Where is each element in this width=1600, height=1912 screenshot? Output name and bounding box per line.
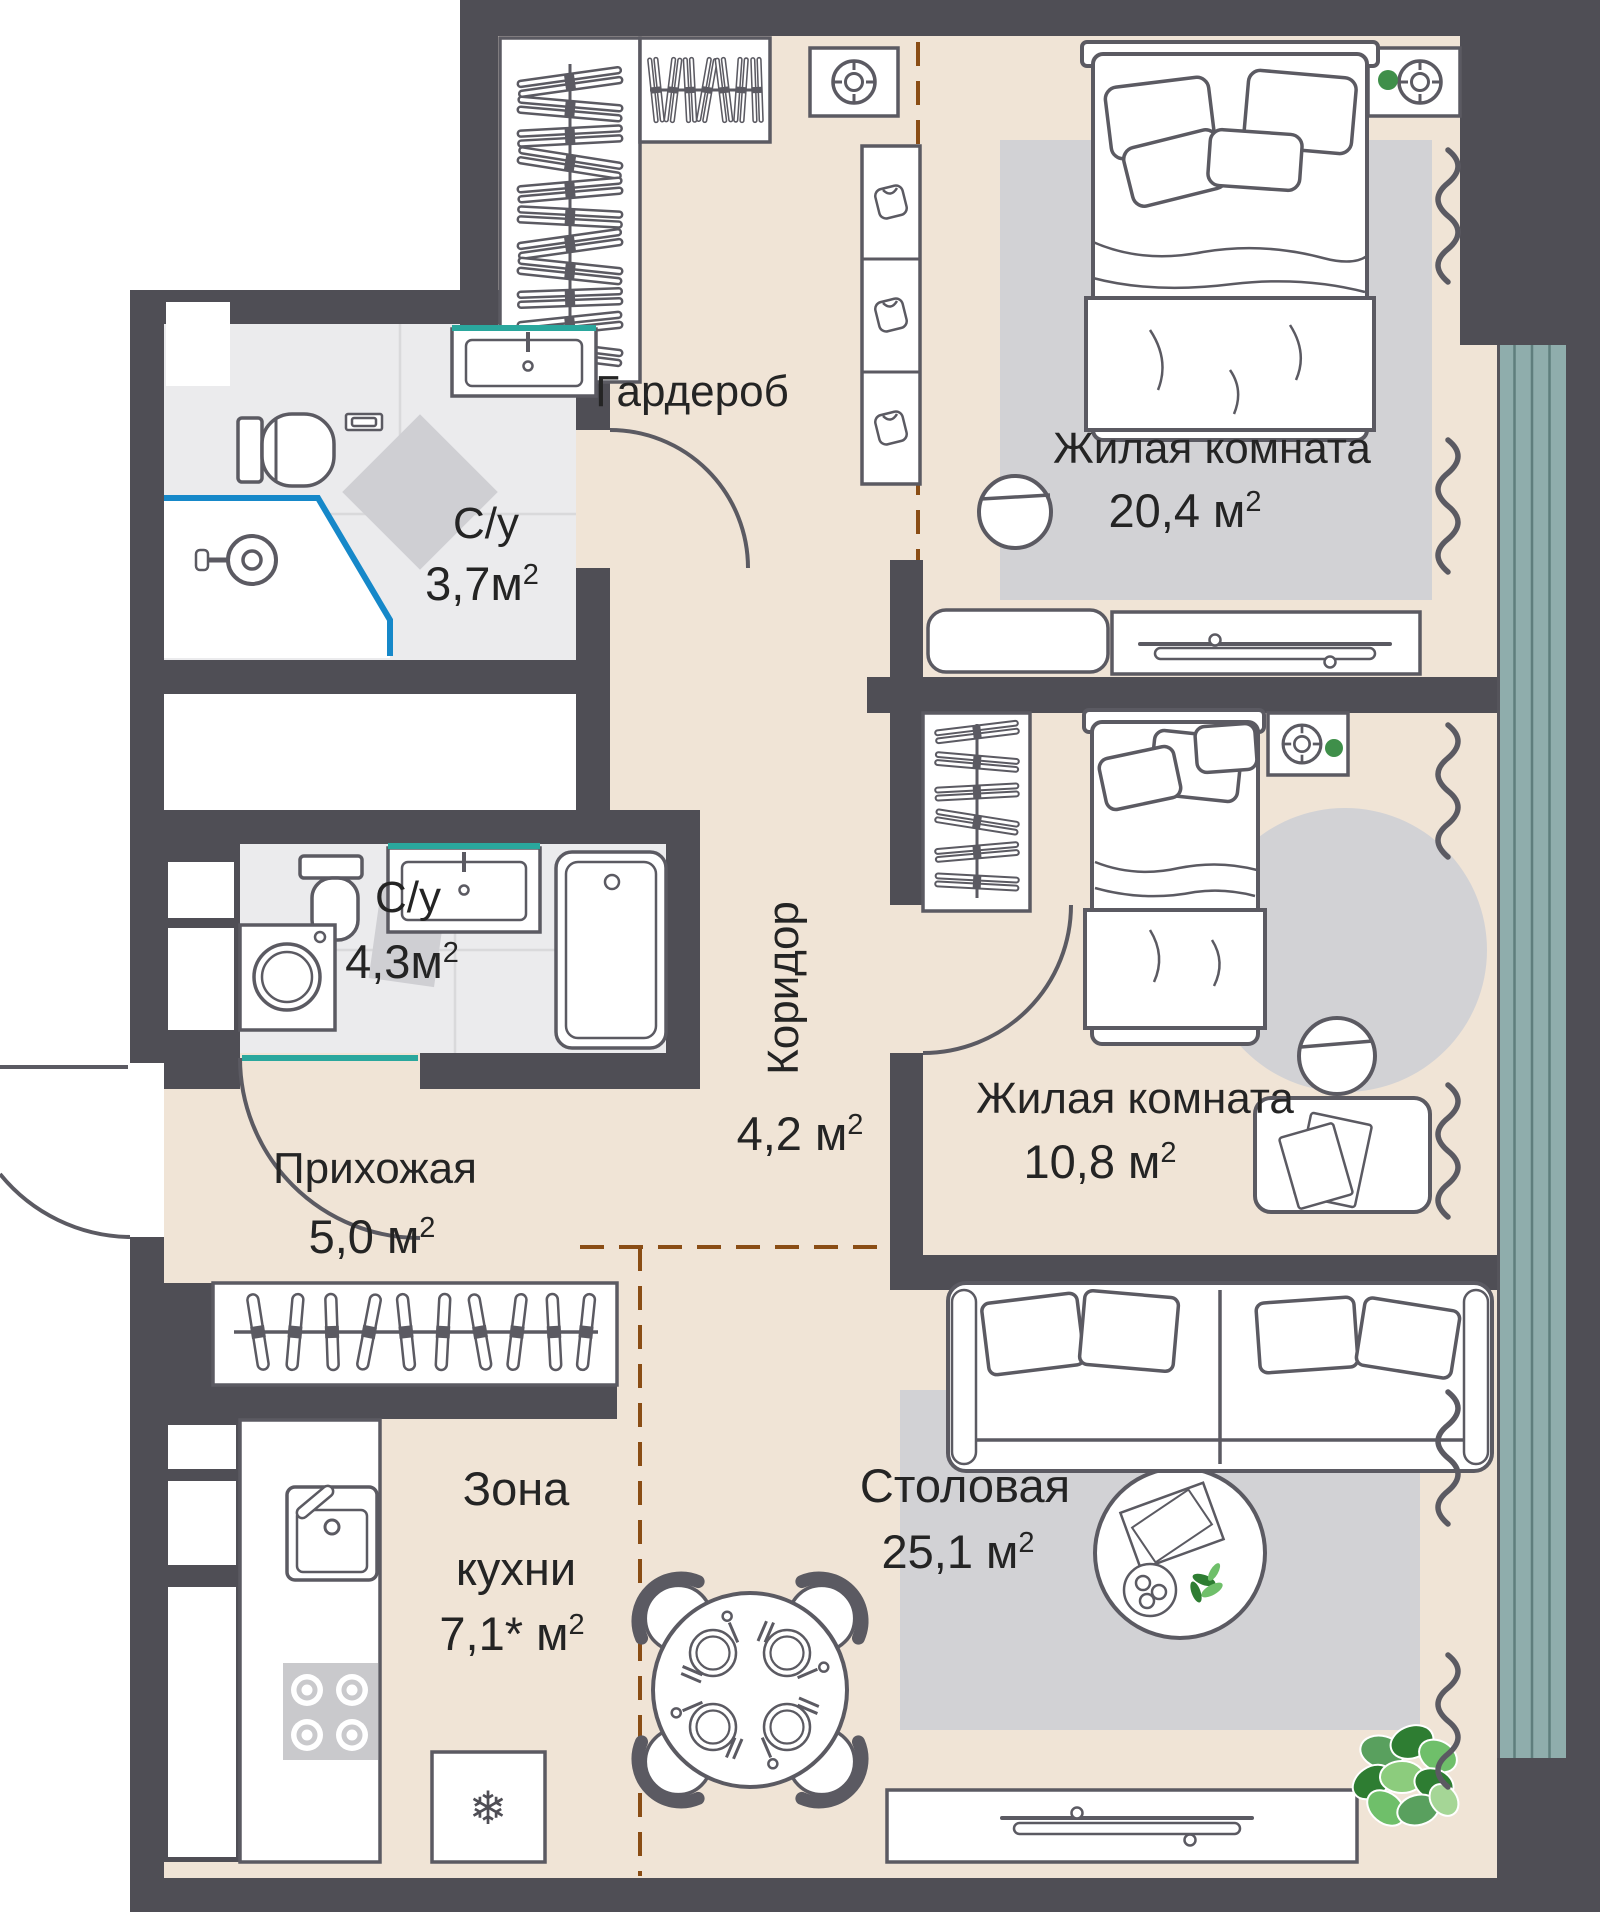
corridor-area-value: 4,2 bbox=[737, 1107, 802, 1160]
kitchen-area-value: 7,1* bbox=[439, 1607, 523, 1660]
stove bbox=[283, 1663, 378, 1760]
bed-bench bbox=[928, 610, 1108, 672]
dining-area: 25,1 м2 bbox=[882, 1525, 1035, 1578]
bath2-area-unit: м bbox=[410, 935, 442, 988]
corridor-label: Коридор bbox=[759, 901, 808, 1075]
double-bed bbox=[1082, 42, 1378, 440]
toilet-bathroom1 bbox=[238, 414, 334, 486]
floor-plan-page: ❄ bbox=[0, 0, 1600, 1912]
hallway-area-value: 5,0 bbox=[309, 1210, 374, 1263]
desk-chair bbox=[1299, 1018, 1375, 1094]
bedroom1-area: 20,4 м2 bbox=[1109, 484, 1262, 537]
bedroom2-area-unit: м bbox=[1115, 1135, 1160, 1188]
bath1-area: 3,7м2 bbox=[425, 557, 539, 610]
bedroom2-area-sup: 2 bbox=[1160, 1137, 1176, 1169]
bedroom2-area-value: 10,8 bbox=[1024, 1135, 1115, 1188]
dining-label: Столовая bbox=[860, 1459, 1070, 1512]
bath1-area-value: 3,7 bbox=[425, 557, 490, 610]
dresser bbox=[1112, 612, 1420, 674]
dining-area-sup: 2 bbox=[1018, 1527, 1034, 1559]
coffee-table bbox=[1095, 1468, 1265, 1638]
dining-area-unit: м bbox=[973, 1525, 1018, 1578]
bedroom1-area-value: 20,4 bbox=[1109, 484, 1200, 537]
bath2-area: 4,3м2 bbox=[345, 935, 459, 988]
wardrobe-shelves bbox=[862, 146, 920, 484]
sofa-pillow bbox=[1355, 1297, 1460, 1379]
bedroom2-label: Жилая комната bbox=[976, 1074, 1294, 1123]
bath2-label: С/у bbox=[375, 873, 441, 922]
bedroom1-label: Жилая комната bbox=[1053, 424, 1371, 473]
coat-rack bbox=[213, 1283, 617, 1385]
window-glazing bbox=[1497, 345, 1566, 1758]
bath2-area-sup: 2 bbox=[443, 937, 459, 969]
hallway-label: Прихожая bbox=[273, 1144, 477, 1193]
hallway-area-sup: 2 bbox=[419, 1212, 435, 1244]
kitchen-area-sup: 2 bbox=[568, 1609, 584, 1641]
dining-area-value: 25,1 bbox=[882, 1525, 973, 1578]
shaft-void bbox=[164, 694, 576, 810]
fridge-snowflake-icon: ❄ bbox=[469, 1781, 508, 1835]
mirror-icon bbox=[346, 414, 382, 430]
dining-table bbox=[653, 1593, 847, 1787]
floor-plan: ❄ bbox=[0, 0, 1600, 1912]
wardrobe-closet-top bbox=[640, 38, 770, 142]
hallway-area: 5,0 м2 bbox=[309, 1210, 436, 1263]
plant-small-icon bbox=[1378, 70, 1398, 90]
sofa-pillow bbox=[1079, 1290, 1179, 1372]
kitchen-label-line2: кухни bbox=[456, 1542, 576, 1595]
bedroom2-nightstand bbox=[1268, 713, 1348, 775]
bath2-area-value: 4,3 bbox=[345, 935, 410, 988]
sofa-pillow bbox=[981, 1292, 1085, 1375]
sofa bbox=[948, 1283, 1492, 1471]
kitchen-sink bbox=[287, 1484, 377, 1580]
bedroom2-area: 10,8 м2 bbox=[1024, 1135, 1177, 1188]
bedroom1-area-sup: 2 bbox=[1245, 486, 1261, 518]
tv-stand bbox=[887, 1790, 1357, 1862]
bedroom2-closet bbox=[923, 713, 1030, 911]
washing-machine bbox=[240, 925, 335, 1030]
corridor-area-sup: 2 bbox=[847, 1109, 863, 1141]
bedroom1-area-unit: м bbox=[1200, 484, 1245, 537]
dining-set bbox=[622, 1562, 877, 1817]
room-hallway bbox=[213, 1283, 617, 1385]
kitchen-label-line1: Зона bbox=[463, 1462, 570, 1515]
entrance-door bbox=[0, 1063, 164, 1237]
bath1-label: С/у bbox=[453, 499, 519, 548]
sink-bathroom1 bbox=[452, 328, 596, 396]
fridge: ❄ bbox=[432, 1752, 545, 1862]
corridor-area-unit: м bbox=[802, 1107, 847, 1160]
sofa-pillow bbox=[1256, 1297, 1359, 1374]
plant-small-icon bbox=[1325, 739, 1343, 757]
kitchen-area-unit: м bbox=[523, 1607, 568, 1660]
single-bed bbox=[1084, 710, 1265, 1044]
hallway-area-unit: м bbox=[374, 1210, 419, 1263]
bath1-area-unit: м bbox=[490, 557, 522, 610]
wardrobe-label: Гардероб bbox=[595, 367, 789, 416]
bath1-area-sup: 2 bbox=[523, 559, 539, 591]
outside-top-left bbox=[0, 0, 460, 290]
kitchen-area: 7,1* м2 bbox=[439, 1607, 584, 1660]
corridor-area: 4,2 м2 bbox=[737, 1107, 864, 1160]
bathtub bbox=[556, 852, 666, 1048]
floor-lamp bbox=[979, 476, 1051, 548]
nightstand-left bbox=[810, 48, 898, 116]
nightstand-right bbox=[1368, 48, 1460, 116]
